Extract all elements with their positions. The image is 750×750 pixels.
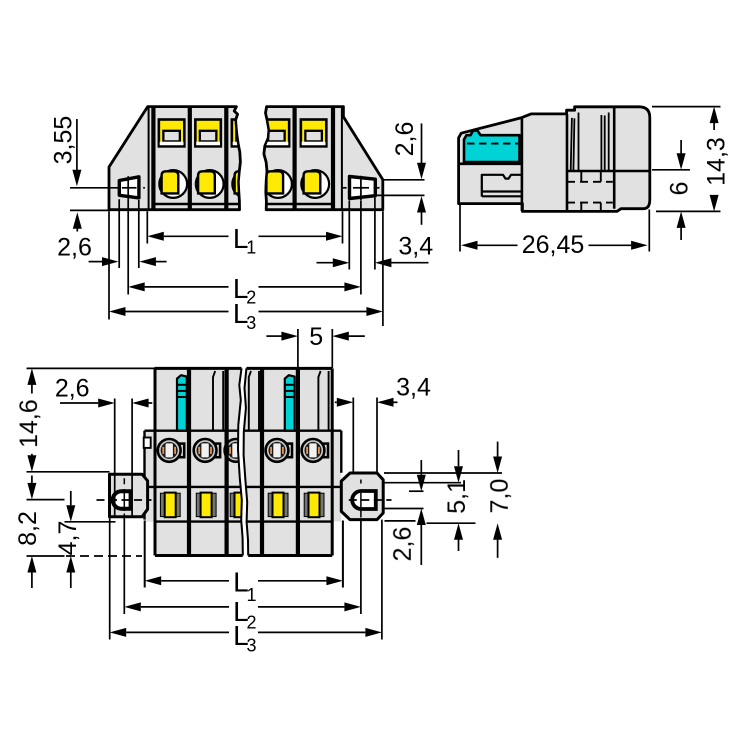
svg-text:3,4: 3,4 bbox=[398, 233, 433, 261]
svg-text:4,7: 4,7 bbox=[54, 521, 82, 556]
svg-text:3: 3 bbox=[246, 635, 256, 655]
svg-text:14,3: 14,3 bbox=[703, 137, 731, 186]
svg-text:5,1: 5,1 bbox=[443, 479, 471, 514]
svg-text:5: 5 bbox=[309, 323, 323, 351]
svg-text:7,0: 7,0 bbox=[486, 479, 514, 514]
svg-text:26,45: 26,45 bbox=[522, 231, 585, 259]
svg-text:2,6: 2,6 bbox=[391, 122, 419, 157]
svg-text:14,6: 14,6 bbox=[15, 399, 43, 448]
svg-text:8,2: 8,2 bbox=[14, 511, 42, 546]
svg-text:3,55: 3,55 bbox=[50, 116, 78, 165]
svg-text:2,6: 2,6 bbox=[55, 374, 90, 402]
svg-text:3: 3 bbox=[246, 313, 256, 333]
svg-text:2,6: 2,6 bbox=[57, 234, 92, 262]
svg-text:2,6: 2,6 bbox=[389, 527, 417, 562]
svg-text:1: 1 bbox=[246, 237, 256, 257]
svg-text:6: 6 bbox=[666, 182, 694, 196]
svg-text:3,4: 3,4 bbox=[396, 374, 431, 402]
